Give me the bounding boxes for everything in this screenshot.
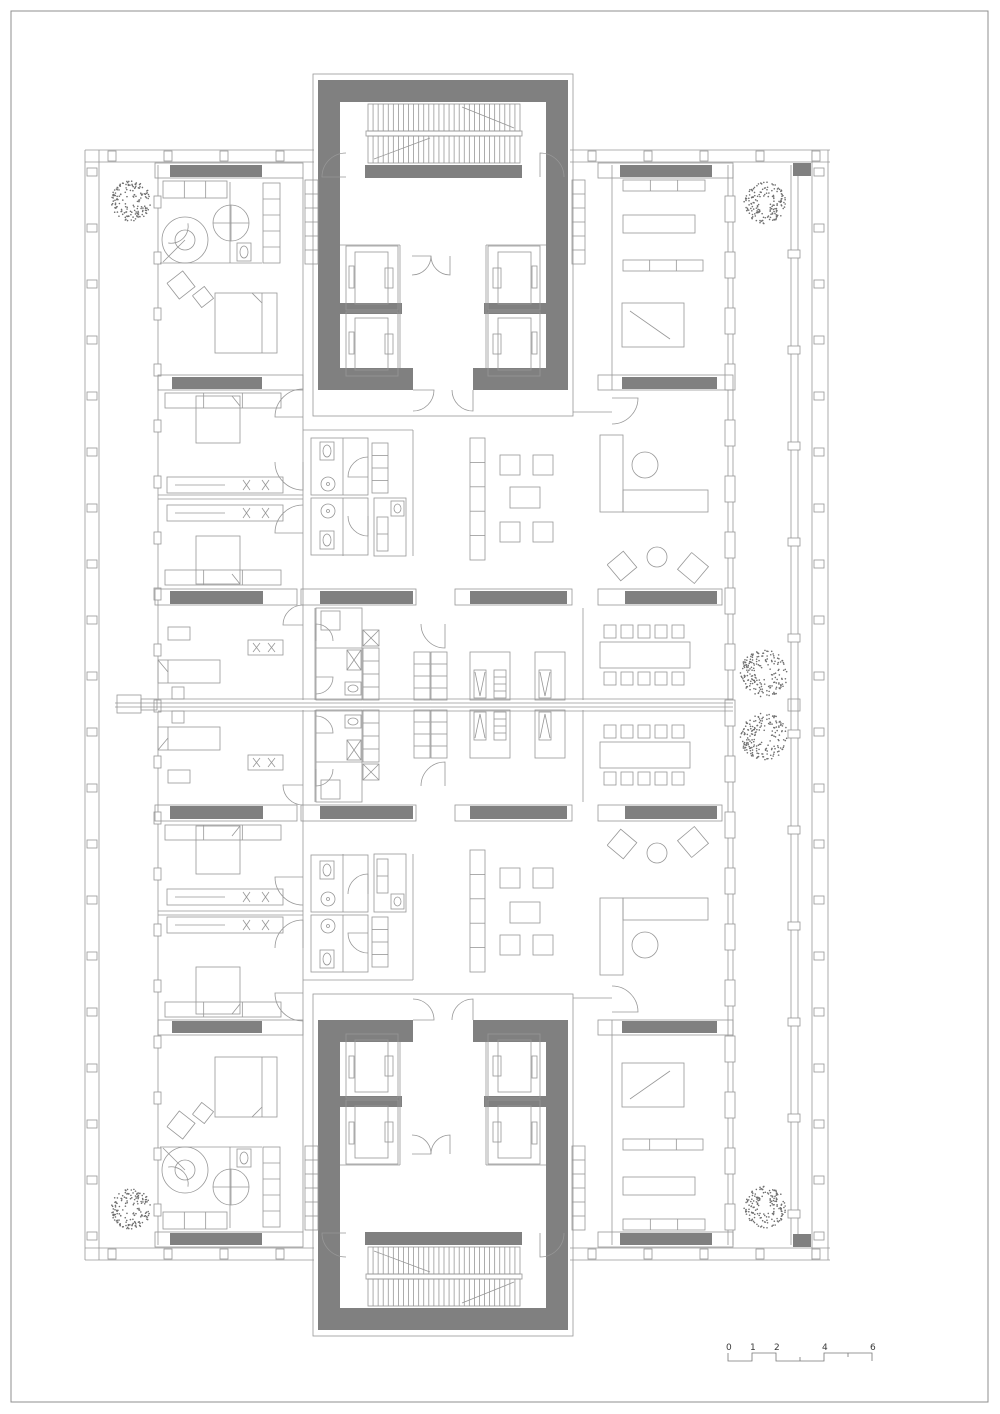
tree	[753, 1200, 755, 1202]
tree	[755, 199, 757, 201]
tree	[779, 734, 781, 736]
bed-fold	[232, 1004, 240, 1014]
tree	[740, 736, 742, 738]
tree	[138, 214, 140, 216]
tree	[743, 665, 745, 667]
tree	[766, 189, 768, 191]
tree	[751, 678, 753, 680]
tree	[766, 192, 768, 194]
tree	[753, 744, 755, 746]
tree	[142, 187, 144, 189]
tree	[748, 197, 750, 199]
tree	[754, 693, 756, 695]
tree	[783, 662, 785, 664]
tree	[774, 748, 776, 750]
tree	[771, 660, 773, 662]
tree	[772, 213, 774, 215]
tree	[774, 188, 776, 190]
tree	[772, 196, 774, 198]
tree	[749, 748, 751, 750]
tree	[750, 208, 752, 210]
facade-top-mullion	[588, 151, 596, 161]
tree	[750, 728, 752, 730]
tree	[125, 1225, 127, 1227]
tree	[125, 203, 127, 205]
tree	[760, 696, 762, 698]
ottoman	[500, 455, 520, 475]
tree	[781, 1203, 783, 1205]
pier-wall	[625, 806, 717, 819]
tree	[762, 692, 764, 694]
sink	[321, 919, 335, 933]
nightstand	[172, 711, 184, 723]
tree	[148, 196, 150, 198]
tree	[784, 203, 786, 205]
balustrade-post	[788, 250, 800, 258]
tree	[766, 658, 768, 660]
door-swing	[283, 605, 303, 625]
lounge-chair	[678, 827, 709, 858]
tree	[118, 1193, 120, 1195]
tree	[767, 1222, 769, 1224]
tree	[136, 1193, 138, 1195]
tree	[752, 659, 754, 661]
tree	[143, 1193, 145, 1195]
dining-chair	[672, 772, 684, 785]
tree	[751, 210, 753, 212]
tree	[142, 207, 144, 209]
core-wall	[318, 1020, 340, 1308]
tree	[765, 1191, 767, 1193]
tree	[130, 190, 132, 192]
elevator-door	[385, 268, 393, 288]
elevator-counterweight	[532, 1122, 537, 1144]
tree	[773, 1198, 775, 1200]
tree	[776, 1197, 778, 1199]
tree	[778, 1208, 780, 1210]
rug	[622, 1063, 684, 1107]
facade-column	[793, 163, 811, 176]
tree	[117, 211, 119, 213]
stair-direction	[374, 1251, 430, 1272]
tree	[785, 678, 787, 680]
tree	[126, 1220, 128, 1222]
tree	[112, 1214, 114, 1216]
window-frame-left	[154, 252, 161, 264]
balustrade-post	[788, 538, 800, 546]
tree	[750, 683, 752, 685]
tree	[746, 659, 748, 661]
tree	[773, 751, 775, 753]
tree	[751, 1205, 753, 1207]
tree	[753, 729, 755, 731]
tree	[111, 1212, 113, 1214]
bookshelf	[470, 438, 485, 560]
tree	[775, 1194, 777, 1196]
facade-left-mullion	[87, 728, 97, 736]
core-wall	[340, 368, 413, 390]
tree	[125, 211, 127, 213]
tree	[138, 1221, 140, 1223]
tree	[756, 656, 758, 658]
tree	[147, 190, 149, 192]
ottoman	[500, 522, 520, 542]
tree	[776, 209, 778, 211]
toilet	[345, 715, 361, 728]
tree	[753, 746, 755, 748]
pier-wall	[170, 165, 262, 177]
tree	[751, 742, 753, 744]
tree	[758, 679, 760, 681]
tree	[742, 678, 744, 680]
facade-right-mullion	[814, 560, 824, 568]
tree	[768, 1216, 770, 1218]
tree	[776, 204, 778, 206]
facade-left-mullion	[87, 560, 97, 568]
tree	[752, 653, 754, 655]
sink	[321, 477, 335, 491]
tree	[146, 207, 148, 209]
tree	[140, 1201, 142, 1203]
sink	[327, 483, 330, 486]
tree	[132, 1218, 134, 1220]
tree	[757, 652, 759, 654]
tree	[754, 727, 756, 729]
tree	[773, 200, 775, 202]
toilet	[240, 1152, 248, 1164]
balustrade-post	[788, 922, 800, 930]
balustrade-post	[788, 346, 800, 354]
dining-chair	[621, 725, 633, 738]
tree	[781, 195, 783, 197]
cooktop	[545, 714, 550, 738]
core-wall	[473, 1020, 546, 1042]
window-frame-right	[725, 364, 735, 390]
door-swing	[275, 462, 303, 490]
lounge-chair	[192, 286, 213, 307]
window-frame-left	[154, 868, 161, 880]
tree	[147, 198, 149, 200]
tree	[749, 189, 751, 191]
tree	[115, 192, 117, 194]
tree	[747, 737, 749, 739]
tree	[112, 203, 114, 205]
tree	[773, 1208, 775, 1210]
facade-right-mullion	[814, 504, 824, 512]
tree	[769, 209, 771, 211]
tree	[757, 1213, 759, 1215]
tree	[122, 214, 124, 216]
tree	[753, 739, 755, 741]
tree	[784, 1205, 786, 1207]
tree	[753, 202, 755, 204]
tree	[747, 723, 749, 725]
bed-fold	[232, 574, 240, 584]
tree	[146, 1201, 148, 1203]
tree	[758, 729, 760, 731]
tree	[749, 191, 751, 193]
tree	[778, 754, 780, 756]
tree	[769, 685, 771, 687]
tree	[774, 1200, 776, 1202]
tree	[778, 669, 780, 671]
tree	[120, 194, 122, 196]
tree	[117, 1221, 119, 1223]
window-frame-right	[725, 476, 735, 502]
dining-table	[600, 642, 690, 668]
tree	[116, 199, 118, 201]
tree	[137, 1201, 139, 1203]
tree	[148, 194, 150, 196]
shower-door	[348, 874, 368, 894]
dining-chair	[638, 672, 650, 685]
window-frame-left	[154, 1148, 161, 1160]
tree	[776, 722, 778, 724]
lounge-chair	[678, 553, 709, 584]
tree	[139, 186, 141, 188]
tree	[115, 202, 117, 204]
tree	[121, 209, 123, 211]
tree	[129, 184, 131, 186]
tree	[754, 1217, 756, 1219]
tree	[767, 664, 769, 666]
door-swing	[612, 986, 638, 1012]
window-frame-right	[725, 980, 735, 1006]
lounge-chair	[607, 829, 637, 859]
tree	[132, 186, 134, 188]
tree	[764, 683, 766, 685]
tree	[760, 720, 762, 722]
window-frame-right	[725, 924, 735, 950]
pier-wall	[470, 806, 567, 819]
tree	[753, 663, 755, 665]
tree	[771, 1225, 773, 1227]
tree	[126, 208, 128, 210]
tree	[763, 216, 765, 218]
tree	[134, 1221, 136, 1223]
tree	[782, 1201, 784, 1203]
tree	[757, 205, 759, 207]
window-frame-left	[154, 1204, 161, 1216]
tree	[144, 1203, 146, 1205]
cooktop	[480, 714, 485, 738]
tree	[135, 1195, 137, 1197]
tree	[128, 1228, 130, 1230]
kitchen-island	[535, 710, 565, 758]
tree	[743, 743, 745, 745]
tree	[755, 1193, 757, 1195]
tree	[125, 184, 127, 186]
facade-column	[793, 1234, 811, 1247]
tree	[133, 205, 135, 207]
tree	[776, 208, 778, 210]
facade-left-mullion	[87, 672, 97, 680]
tree	[121, 210, 123, 212]
tree	[757, 1197, 759, 1199]
toilet	[240, 246, 248, 258]
tree	[773, 745, 775, 747]
ottoman	[500, 868, 520, 888]
window-frame-left	[154, 1092, 161, 1104]
facade-left-mullion	[87, 448, 97, 456]
tree	[129, 1224, 131, 1226]
facade-right-mullion	[814, 280, 824, 288]
tree	[135, 213, 137, 215]
tree	[756, 1197, 758, 1199]
tree	[776, 686, 778, 688]
tree	[771, 190, 773, 192]
tree	[776, 191, 778, 193]
facade-left-mullion	[87, 896, 97, 904]
tree	[747, 656, 749, 658]
balustrade-post	[788, 730, 800, 738]
tree	[745, 662, 747, 664]
tree	[113, 200, 115, 202]
window-frame-left	[154, 644, 161, 656]
tree	[743, 745, 745, 747]
tree	[761, 742, 763, 744]
tree	[134, 1214, 136, 1216]
tree	[763, 756, 765, 758]
window-frame-left	[154, 476, 161, 488]
tree	[783, 747, 785, 749]
tree	[116, 1210, 118, 1212]
tree	[756, 1208, 758, 1210]
bookshelf	[470, 850, 485, 972]
coffee-table	[623, 215, 695, 233]
tree	[126, 1213, 128, 1215]
tree	[125, 1205, 127, 1207]
cooktop	[540, 672, 545, 696]
tree	[770, 217, 772, 219]
elevator-counterweight	[532, 1056, 537, 1078]
tree	[756, 207, 758, 209]
tree	[773, 1200, 775, 1202]
shower-door	[348, 457, 368, 477]
door-swing	[275, 505, 303, 533]
tree	[773, 211, 775, 213]
shower-room	[374, 498, 406, 556]
facade-top-mullion	[108, 151, 116, 161]
tree	[766, 714, 768, 716]
tree	[752, 190, 754, 192]
tree	[133, 1202, 135, 1204]
tree	[754, 1214, 756, 1216]
tree	[780, 661, 782, 663]
tree	[773, 1211, 775, 1213]
tree	[769, 723, 771, 725]
tree	[762, 189, 764, 191]
tree	[756, 210, 758, 212]
window-frame-left	[154, 196, 161, 208]
tree	[747, 752, 749, 754]
facade-top-mullion	[588, 1249, 596, 1259]
tree	[757, 693, 759, 695]
tree	[776, 203, 778, 205]
tree	[741, 732, 743, 734]
facade-top-mullion	[700, 151, 708, 161]
tree	[780, 724, 782, 726]
elevator-car	[355, 1106, 388, 1158]
window-frame-right	[725, 868, 735, 894]
tree	[121, 1200, 123, 1202]
wardrobe-tall	[263, 1147, 280, 1227]
tree	[114, 200, 116, 202]
core-wall	[318, 1308, 568, 1330]
tree	[779, 674, 781, 676]
core-wall	[546, 1020, 568, 1308]
tree	[773, 204, 775, 206]
tree	[132, 1192, 134, 1194]
tree	[745, 683, 747, 685]
facade-left-mullion	[87, 616, 97, 624]
tree	[745, 747, 747, 749]
tree	[134, 183, 136, 185]
bed	[196, 396, 240, 443]
tree	[128, 1225, 130, 1227]
lounge-chair	[607, 551, 637, 581]
tree	[128, 181, 130, 183]
tree	[122, 1195, 124, 1197]
tree	[771, 749, 773, 751]
tree	[115, 1214, 117, 1216]
tree	[763, 1227, 765, 1229]
facade-top-mullion	[164, 151, 172, 161]
pier-wall	[170, 1233, 262, 1245]
toilet	[394, 504, 401, 513]
tree	[116, 206, 118, 208]
tree	[139, 1209, 141, 1211]
tree	[125, 206, 127, 208]
tree	[763, 1192, 765, 1194]
tree	[756, 748, 758, 750]
tree	[772, 219, 774, 221]
rug-fold	[630, 1071, 670, 1099]
tree	[756, 729, 758, 731]
tree	[762, 1220, 764, 1222]
tree	[745, 1202, 747, 1204]
tree	[775, 688, 777, 690]
shower-room	[374, 854, 406, 912]
tree	[764, 650, 766, 652]
tree	[760, 725, 762, 727]
tree	[754, 682, 756, 684]
tree	[114, 189, 116, 191]
tree	[756, 220, 758, 222]
tree	[137, 208, 139, 210]
sofa-l-section	[600, 898, 623, 975]
tree	[746, 195, 748, 197]
tree	[782, 660, 784, 662]
tree	[117, 187, 119, 189]
tree	[773, 692, 775, 694]
tree	[133, 206, 135, 208]
tree	[782, 683, 784, 685]
door-swing	[612, 398, 638, 424]
tree	[741, 677, 743, 679]
tree	[125, 1197, 127, 1199]
tree	[147, 209, 149, 211]
tree	[760, 683, 762, 685]
tree	[756, 1201, 758, 1203]
tree	[147, 1211, 149, 1213]
tree	[752, 1203, 754, 1205]
tree	[748, 200, 750, 202]
tree	[747, 675, 749, 677]
pier-wall	[320, 591, 413, 604]
tree	[780, 1193, 782, 1195]
window-frame-left	[154, 980, 161, 992]
